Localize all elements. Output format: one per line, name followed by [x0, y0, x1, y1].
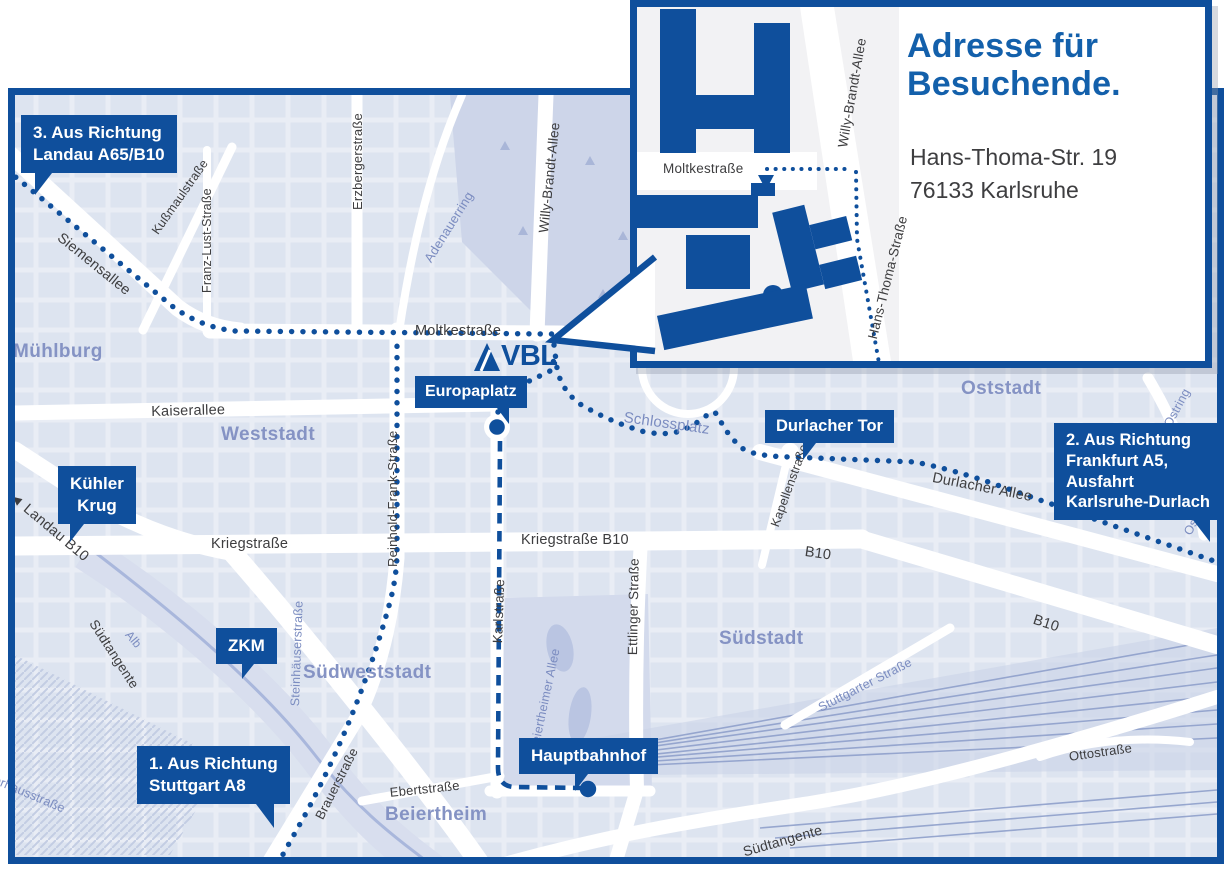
street-label-reinhold-frank-strasse: Reinhold-Frank-Straße	[385, 431, 400, 567]
inset-pointer-tail	[545, 243, 657, 358]
vbl-triangle-icon	[474, 341, 501, 371]
street-label-kaiserallee: Kaiserallee	[151, 402, 225, 420]
building-square	[686, 235, 750, 289]
street-label-b10-west: B10	[804, 544, 832, 564]
inset-panel-visitor-address: Moltkestraße Willy-Brandt-Allee Hans-Tho…	[630, 0, 1212, 368]
inset-visitor-address: Hans-Thoma-Str. 19 76133 Karlsruhe	[910, 141, 1117, 206]
street-label-moltkestrasse: Moltkestraße	[415, 323, 501, 339]
street-label-erzbergerstrasse: Erzbergerstraße	[350, 113, 365, 210]
badge-hauptbahnhof: Hauptbahnhof	[519, 738, 658, 774]
badge-direction-landau: 3. Aus Richtung Landau A65/B10	[21, 115, 177, 173]
street-label-kriegstrasse-b10: Kriegstraße B10	[521, 532, 629, 548]
district-label-suedstadt: Südstadt	[719, 628, 803, 650]
building-long-bar	[637, 195, 758, 228]
street-label-ettlinger-strasse: Ettlinger Straße	[625, 558, 642, 655]
inset-title: Adresse für Besuchende.	[907, 27, 1197, 104]
street-label-kriegstrasse: Kriegstraße	[211, 536, 288, 552]
badge-europaplatz: Europaplatz	[415, 376, 527, 408]
badge-direction-stuttgart: 1. Aus Richtung Stuttgart A8	[137, 746, 290, 804]
road-moltkestrasse	[210, 331, 562, 333]
badge-kuehler-krug: Kühler Krug	[58, 466, 136, 524]
street-label-karlstrasse: Karlstraße	[490, 579, 507, 644]
badge-durlacher-tor: Durlacher Tor	[765, 410, 894, 443]
district-label-beiertheim: Beiertheim	[385, 804, 487, 826]
road-kriegstrasse	[15, 539, 862, 546]
district-label-muehlburg: Mühlburg	[13, 341, 103, 363]
street-label-franz-lust-strasse: Franz-Lust-Straße	[200, 188, 214, 293]
building-h-left-wing	[660, 9, 696, 153]
vbl-directions-map: Mühlburg Weststadt Oststadt Südstadt Süd…	[0, 0, 1230, 874]
building-h-crossbar	[692, 95, 758, 129]
district-label-weststadt: Weststadt	[221, 424, 315, 446]
inset-street-label-moltkestrasse: Moltkestraße	[663, 161, 743, 176]
building-entrance-notch	[751, 183, 775, 196]
badge-direction-frankfurt: 2. Aus Richtung Frankfurt A5, Ausfahrt K…	[1054, 423, 1222, 520]
district-label-suedweststadt: Südweststadt	[303, 662, 431, 684]
district-label-oststadt: Oststadt	[961, 378, 1041, 400]
badge-zkm: ZKM	[216, 628, 277, 664]
building-h-right-wing	[754, 23, 790, 153]
